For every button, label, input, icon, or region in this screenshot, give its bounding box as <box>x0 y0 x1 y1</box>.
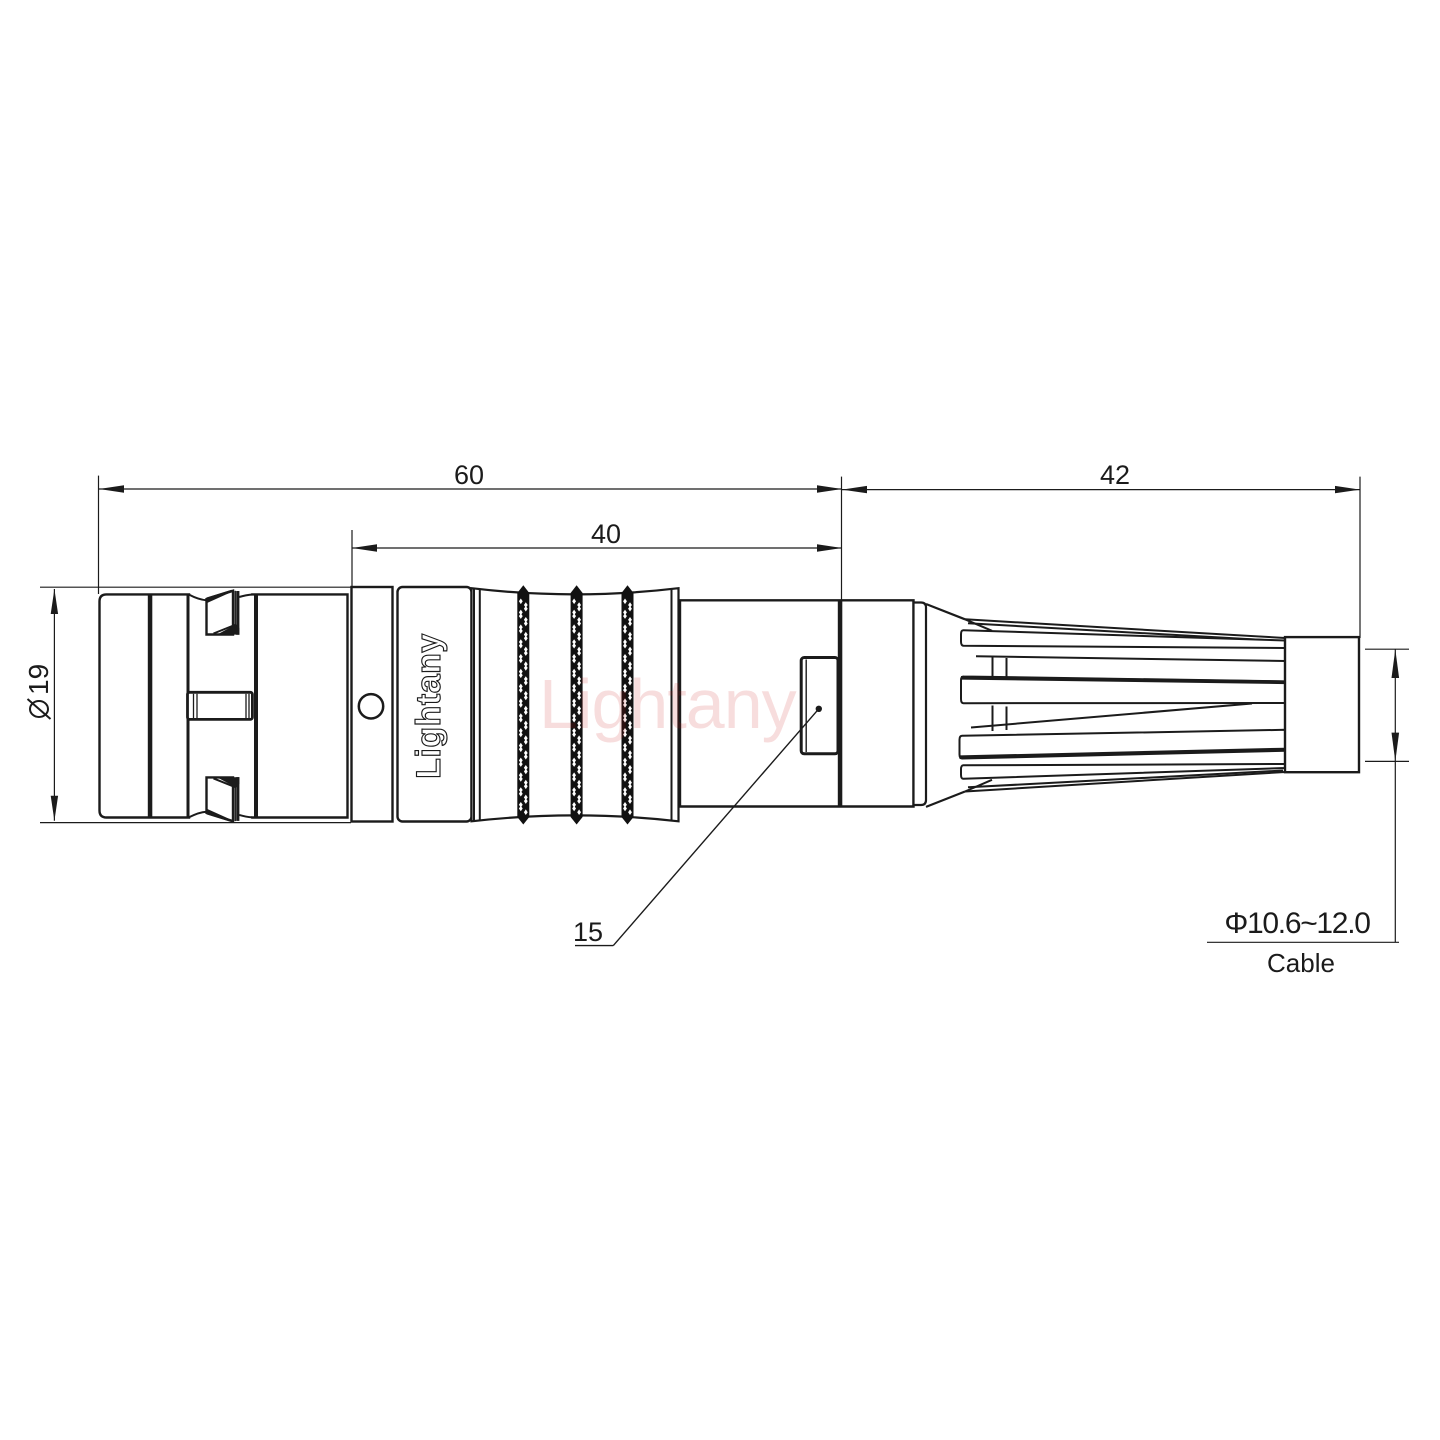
svg-text:Φ10.6~12.0: Φ10.6~12.0 <box>1224 907 1370 940</box>
svg-text:40: 40 <box>591 519 621 549</box>
svg-text:Lightany: Lightany <box>539 665 797 743</box>
svg-text:19: 19 <box>23 664 54 695</box>
svg-text:42: 42 <box>1100 460 1130 490</box>
svg-text:15: 15 <box>573 917 603 947</box>
svg-text:60: 60 <box>454 460 484 490</box>
svg-text:Lightany: Lightany <box>410 633 448 779</box>
svg-text:Cable: Cable <box>1267 948 1335 978</box>
